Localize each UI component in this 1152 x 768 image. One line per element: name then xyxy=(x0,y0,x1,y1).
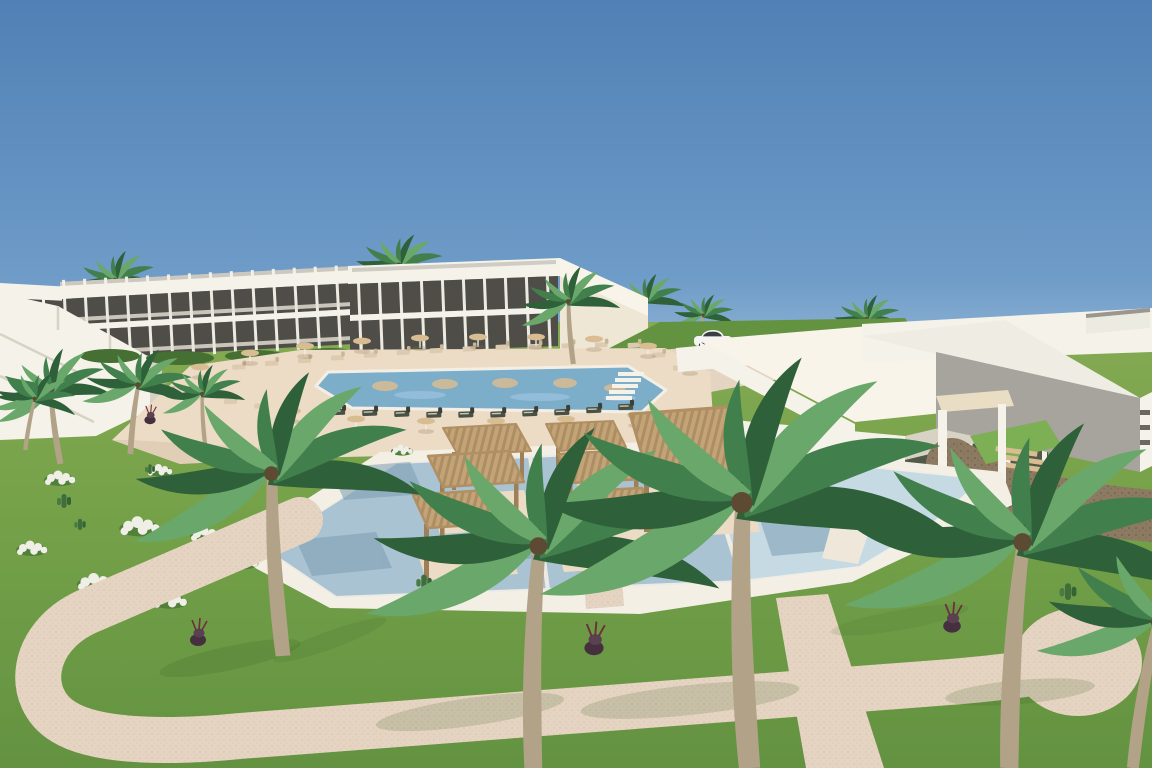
main-pool xyxy=(316,366,666,412)
resort-render-canvas xyxy=(0,0,1152,768)
resort-render xyxy=(0,0,1152,768)
